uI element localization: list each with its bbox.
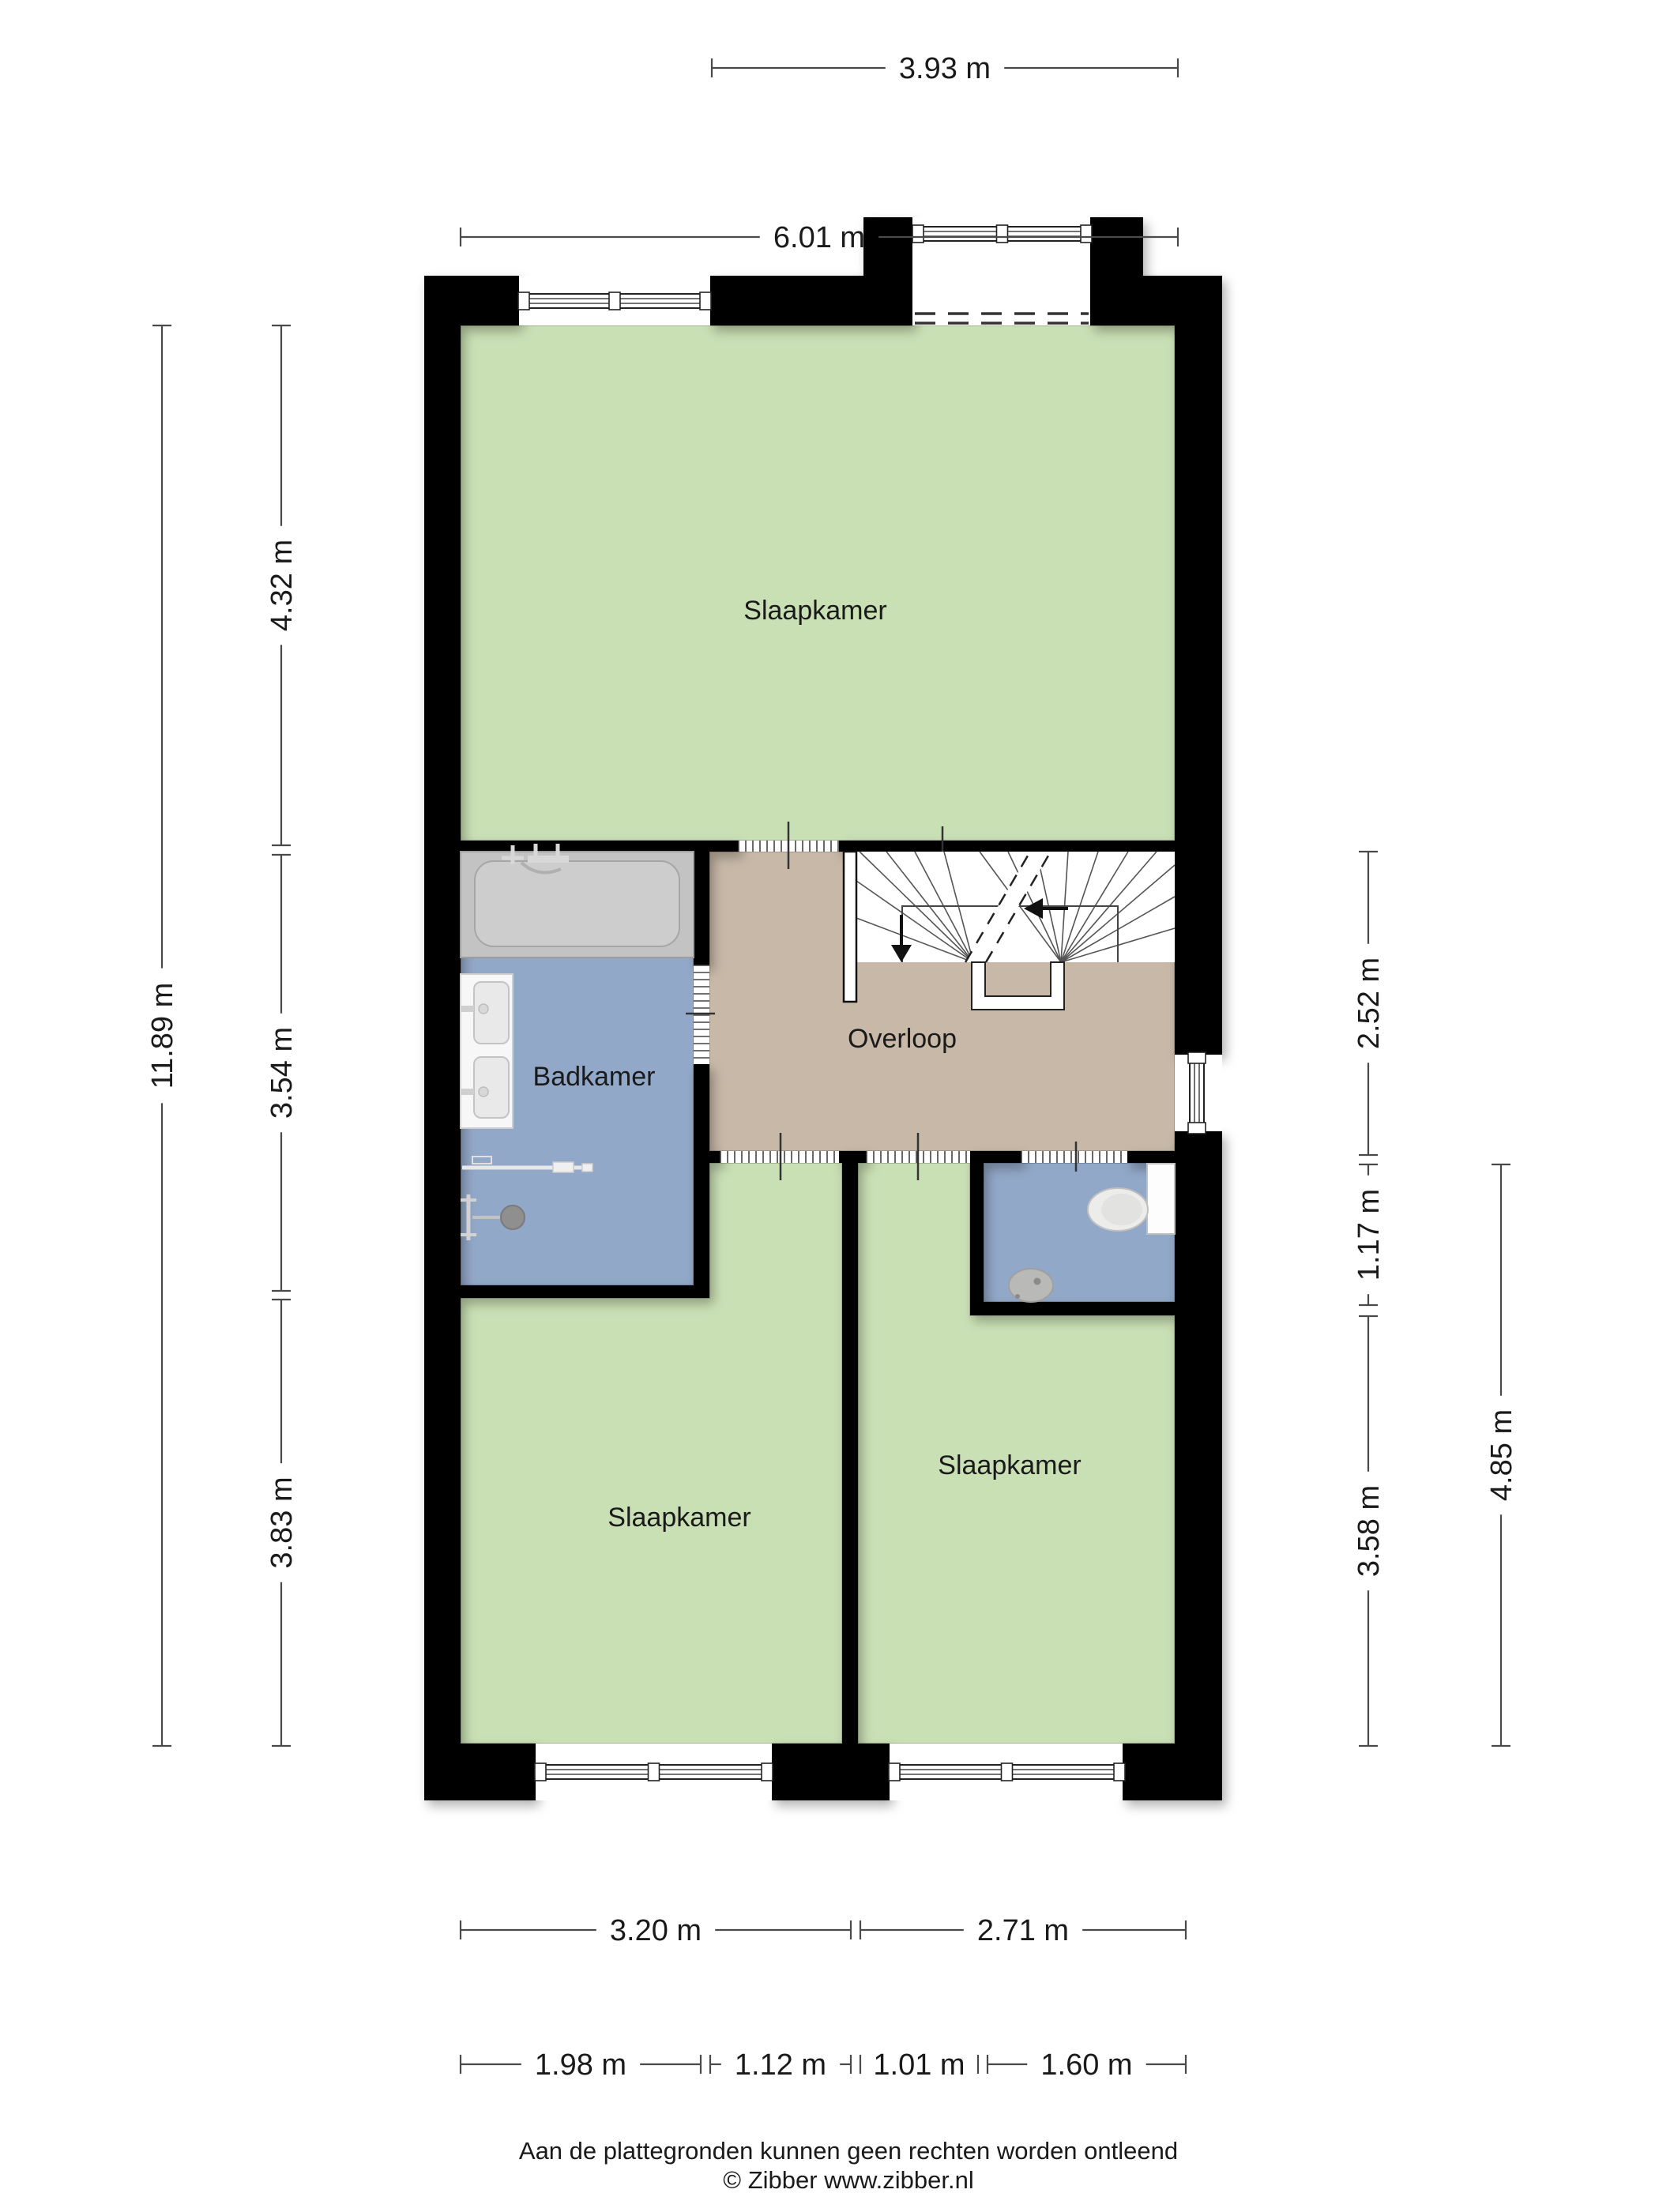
dim-right-overloop-label: 2.52 m [1352, 957, 1386, 1049]
label-slaapkamer-bottom-left: Slaapkamer [608, 1503, 750, 1533]
washbasin-icon [461, 974, 513, 1128]
floorplan-drawing: SlaapkamerBadkamerOverloopSlaapkamerSlaa… [0, 0, 1659, 2212]
dim-bottom-left-room: 3.20 m [461, 1914, 851, 1947]
exterior-wall [772, 1744, 890, 1800]
label-overloop: Overloop [848, 1024, 957, 1054]
dim-bottom-right-room-label: 2.71 m [977, 1914, 1069, 1947]
dim-right-toilet-label: 1.17 m [1352, 1189, 1386, 1281]
dim-left-mid-label: 3.54 m [265, 1027, 299, 1119]
door-toilet [1021, 1151, 1127, 1163]
interior-wall [842, 1163, 858, 1744]
interior-wall [970, 1163, 984, 1315]
dim-bottom-d4-label: 1.60 m [1040, 2048, 1132, 2082]
dim-top-inner-label: 3.93 m [899, 52, 991, 85]
rooms [461, 325, 1175, 1744]
dim-left-top: 4.32 m [265, 325, 299, 845]
dim-bottom-d3: 1.01 m [860, 2048, 978, 2082]
dim-left-total: 11.89 m [146, 325, 179, 1746]
exterior-wall [424, 1744, 536, 1800]
dim-left-bottom: 3.83 m [265, 1300, 299, 1746]
footer-credit: © Zibber www.zibber.nl [723, 2166, 973, 2194]
dim-bottom-d4: 1.60 m [987, 2048, 1186, 2082]
footer: Aan de plattegronden kunnen geen rechten… [519, 2137, 1178, 2194]
dim-bottom-d1: 1.98 m [461, 2048, 701, 2082]
exterior-wall [424, 276, 461, 1800]
interior-wall [839, 841, 1175, 852]
dim-right-bedroom-label: 3.58 m [1352, 1485, 1386, 1577]
interior-wall [970, 1302, 1175, 1315]
floorplan-page: SlaapkamerBadkamerOverloopSlaapkamerSlaa… [0, 0, 1659, 2212]
exterior-wall [424, 276, 519, 325]
interior-wall [461, 1285, 709, 1298]
dim-right-total-label: 4.85 m [1485, 1409, 1518, 1501]
bathtub-icon [461, 844, 694, 957]
dim-bottom-d2: 1.12 m [710, 2048, 851, 2082]
dim-bottom-left-room-label: 3.20 m [610, 1914, 702, 1947]
dim-left-total-label: 11.89 m [146, 983, 179, 1089]
exterior-wall [710, 276, 863, 325]
exterior-wall [1175, 1131, 1222, 1800]
interior-wall [694, 852, 709, 965]
dim-right-toilet: 1.17 m [1352, 1164, 1386, 1305]
exterior-wall [1175, 276, 1222, 1055]
fountain-sink-icon [1009, 1269, 1053, 1302]
exterior-wall [1143, 276, 1222, 325]
dim-bottom-right-room: 2.71 m [860, 1914, 1186, 1947]
exterior-wall [1123, 1744, 1222, 1800]
window-top-left [518, 276, 711, 325]
dim-right-overloop: 2.52 m [1352, 852, 1386, 1155]
room-slaapkamer-top [461, 325, 1175, 841]
dim-left-mid: 3.54 m [265, 855, 299, 1291]
window-bottom-right [889, 1744, 1125, 1800]
door-badkamer [694, 965, 709, 1064]
window-bottom-left [535, 1744, 773, 1800]
dim-bottom-d3-label: 1.01 m [873, 2048, 965, 2082]
interior-wall [839, 1151, 867, 1163]
dim-right-bedroom: 3.58 m [1352, 1316, 1386, 1746]
dim-top-inner: 3.93 m [712, 52, 1178, 85]
interior-wall [461, 841, 739, 852]
exterior-wall [1090, 217, 1143, 325]
window-right-overloop [1175, 1052, 1222, 1134]
dim-bottom-d2-label: 1.12 m [735, 2048, 826, 2082]
dim-left-bottom-label: 3.83 m [265, 1477, 299, 1568]
dim-left-top-label: 4.32 m [265, 540, 299, 631]
dim-bottom-d1-label: 1.98 m [535, 2048, 626, 2082]
dim-top-outer-label: 6.01 m [773, 221, 865, 254]
footer-disclaimer: Aan de plattegronden kunnen geen rechten… [519, 2137, 1178, 2165]
interior-wall [694, 1064, 709, 1298]
label-slaapkamer-top: Slaapkamer [743, 596, 886, 626]
label-badkamer: Badkamer [533, 1062, 656, 1092]
interior-wall [970, 1151, 1021, 1163]
dim-right-total: 4.85 m [1485, 1164, 1518, 1746]
exterior-wall [863, 217, 912, 325]
label-slaapkamer-bottom-right: Slaapkamer [938, 1450, 1081, 1480]
interior-wall [709, 1151, 720, 1163]
interior-wall [1127, 1151, 1175, 1163]
